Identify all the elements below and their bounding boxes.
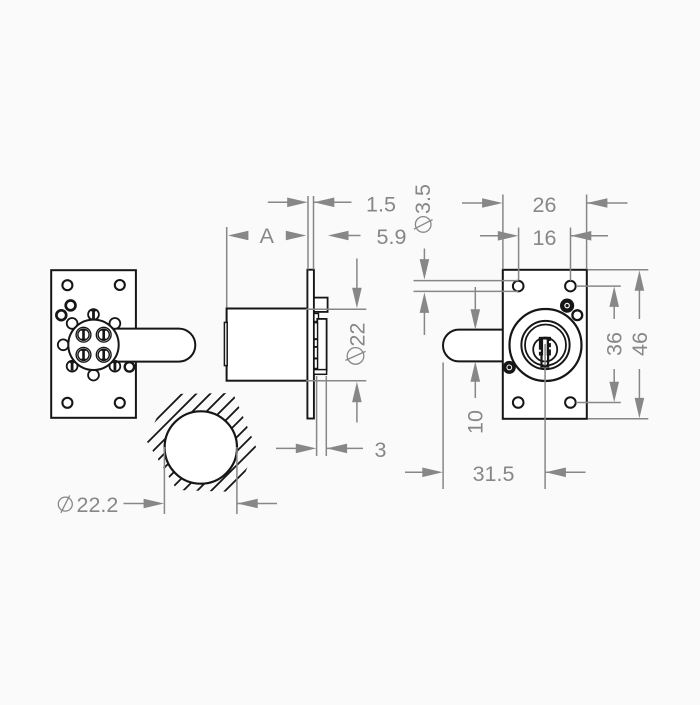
svg-text:5.9: 5.9 <box>377 225 407 249</box>
svg-text:31.5: 31.5 <box>473 462 515 486</box>
svg-text:10: 10 <box>464 410 488 434</box>
svg-text:26: 26 <box>533 193 557 217</box>
svg-text:16: 16 <box>533 226 557 250</box>
svg-text:3: 3 <box>375 438 387 462</box>
svg-text:46: 46 <box>628 332 652 356</box>
svg-text:1.5: 1.5 <box>366 193 396 217</box>
svg-text:36: 36 <box>603 332 627 356</box>
svg-text:22.2: 22.2 <box>77 493 119 517</box>
svg-text:A: A <box>260 224 275 248</box>
svg-text:3.5: 3.5 <box>411 184 435 214</box>
svg-text:22: 22 <box>346 323 370 347</box>
